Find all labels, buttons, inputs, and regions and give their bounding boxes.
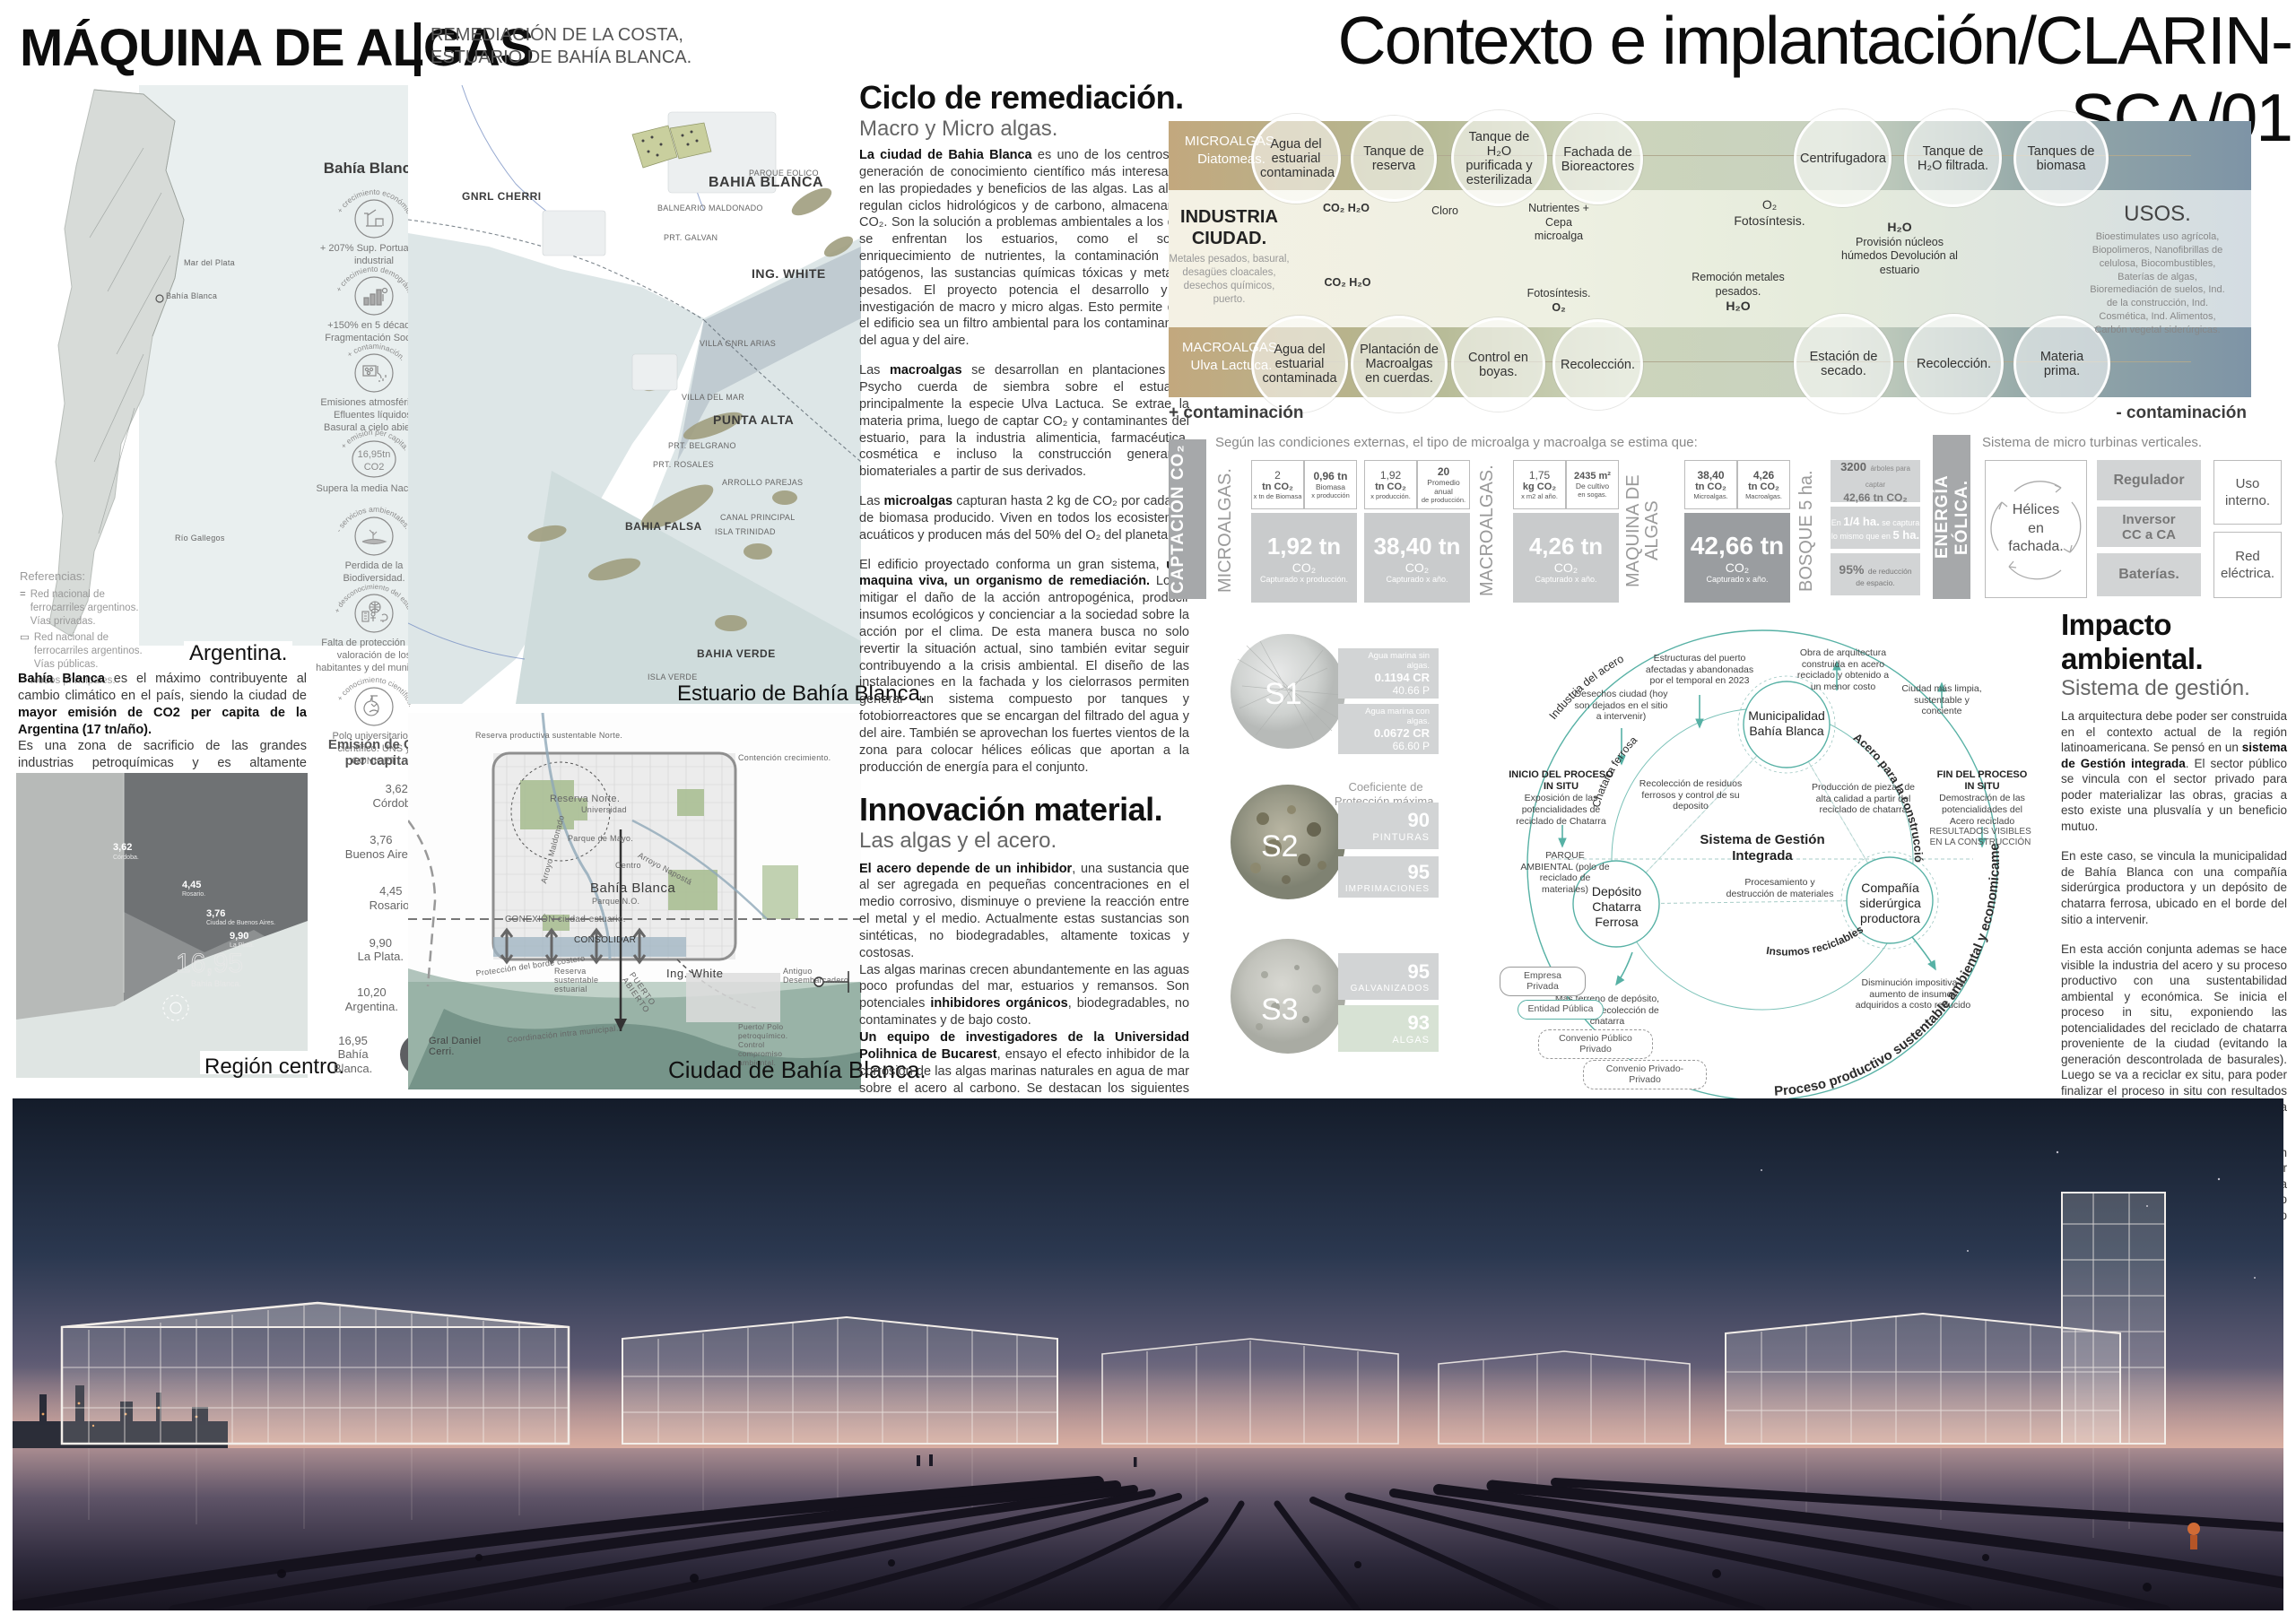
s2-box-pinturas: 90 PINTURAS [1338,803,1439,849]
innovacion-subheading: Las algas y el acero. [859,829,1189,854]
city-label: Universidad [581,805,627,814]
estuary-label: ISLA TRINIDAD [715,527,776,536]
subtitle-line2: ESTUARIO DE BAHÍA BLANCA. [430,47,691,69]
city-label: CONEXIÓN ciudad-estuario. [505,915,626,924]
sample-s3-photo: S3 [1229,937,1347,1055]
ann-recoleccion: Recolección de residuos ferrosos y contr… [1637,778,1744,812]
svg-text:+ crecimiento demográfico.: + crecimiento demográfico. [316,256,417,299]
svg-text:+ contaminación.: + contaminación. [345,342,407,362]
ann-procesamiento: Procesamiento y destrucción de materiale… [1724,877,1836,899]
flow-node: Agua del estuarial contaminada [1251,316,1348,412]
svg-text:Córdoba.: Córdoba. [113,855,139,861]
flow-node: Recolección. [1552,319,1643,410]
estuary-label: ING. WHITE [752,266,826,281]
flow-node: Agua del estuarial contaminada [1251,114,1341,204]
ann-parque: PARQUE AMBIENTAL (polo de reciclado de m… [1520,850,1610,895]
eolica-intro: Sistema de micro turbinas verticales. [1982,435,2287,450]
estuary-label: PRT. GALVAN [664,233,717,242]
map-label-rio-gallegos: Río Gallegos [175,534,225,542]
ann-inicio: INICIO DEL PROCESO IN SITUExposición de … [1505,769,1617,827]
svg-text:+ crecimiento económico.: + crecimiento económico. [335,187,417,221]
city-label: Reserva Norte. [550,794,620,804]
title-divider [414,22,421,76]
city-label: Antiguo Desembarcadero [783,967,846,985]
project-render [13,1098,2283,1610]
estuary-label: GNRL CHERRI [462,190,542,203]
city-label: Gral Daniel Cerri. [429,1036,483,1057]
captacion-section: CAPTACIÓN CO₂ Según las condiciones exte… [1169,435,1976,601]
ann-co2-h2o-bot: CO₂ H₂O [1323,276,1372,291]
svg-text:16,95: 16,95 [176,949,243,978]
ann-produccion: Producción de piezas de alta calidad a p… [1807,782,1919,816]
pill-convenio-publico: Convenio Público Privado [1538,1029,1653,1059]
bosque-vlabel: BOSQUE 5 ha. [1796,464,1823,598]
map-label-bahia-blanca-ar: Bahía Blanca [166,291,217,300]
flow-node: Tanque de H₂O purificada y esterilizada [1451,110,1547,206]
ciclo-p3: Las microalgas capturan hasta 2 kg de CO… [859,493,1189,544]
macro-vlabel: MACROALGAS. [1477,464,1504,598]
pill-entidad-publica: Entidad Pública [1518,1000,1604,1020]
svg-text:Ciudad de Buenos Aires.: Ciudad de Buenos Aires. [206,920,275,926]
industria-ciudad-label: INDUSTRIA CIUDAD. Metales pesados, basur… [1169,206,1290,307]
city-label: Reserva sustentable estuarial [554,967,608,994]
estuary-label: PRT. BELGRANO [668,441,736,450]
ann-o2-foto: O₂ Fotosíntesis. [1729,197,1810,229]
red-electrica-box: Red eléctrica. [2213,532,2282,598]
city-label: Centro [615,861,641,870]
uso-interno-box: Uso interno. [2213,460,2282,525]
ciclo-p1: La ciudad de Bahia Blanca es uno de los … [859,147,1189,350]
referencias-title: Referencias: [20,569,154,585]
impacto-subheading: Sistema de gestión. [2061,676,2287,701]
captacion-group3: 1,75kg CO₂x m2 al año. 2435 m²De cultivo… [1513,460,1619,603]
svg-text:- servicios ambientales.: - servicios ambientales. [334,505,412,534]
ann-fin: FIN DEL PROCESO IN SITUDemostración de l… [1933,769,2031,827]
rail-public-icon: ▭ [20,631,30,672]
estuary-label: ISLA VERDE [648,673,698,681]
referencias-legend: Referencias: = Red nacional de ferrocarr… [20,569,154,687]
impacto-p2: En este caso, se vincula la municipalida… [2061,848,2287,927]
s3-box-algas: 93 ALGAS [1338,1005,1439,1052]
argentina-caption: Argentina. [184,641,292,666]
impacto-p1: La arquitectura debe poder ser construid… [2061,708,2287,834]
ann-obra: Obra de arquitectura construida en acero… [1794,647,1892,692]
svg-text:4,45: 4,45 [182,880,201,890]
ann-cloro: Cloro [1418,204,1472,219]
node-municipalidad: Municipalidad Bahía Blanca [1742,708,1831,739]
estuary-label: PRT. ROSALES [653,460,714,469]
regulador-box: Regulador [2097,460,2201,500]
s3-box-galvanizados: 95 GALVANIZADOS [1338,953,1439,1000]
samples-section: S1 Agua marina sin algas. 0.1194 CR 40.6… [1229,632,1444,1085]
flow-node: Fachada de Bioreactores [1552,114,1643,204]
svg-text:9,90: 9,90 [230,931,248,942]
flow-node: Tanque de reserva [1351,116,1437,202]
gestion-center-label: Sistema de GestiónIntegrada [1682,832,1843,864]
node-compania: Compañía siderúrgica productora [1848,881,1933,925]
ann-remocion: Remoción metales pesados.H₂O [1671,271,1805,315]
bold-lead: Bahía Blanca [18,672,105,686]
pill-empresa-privada: Empresa Privada [1500,967,1586,996]
impacto-heading: Impacto ambiental. [2061,608,2287,676]
estuary-label: BALNEARIO MALDONADO [657,204,763,213]
city-label: CONSOLIDAR [574,935,636,945]
usos-block: USOS. Bioestimulates uso agrícola, Biopo… [2083,202,2231,337]
flow-node: Control en boyas. [1451,317,1545,412]
estuary-label: VILLA GNRL ARIAS [700,339,776,348]
city-label: Bahía Blanca [590,881,675,896]
ann-fotosintesis: Fotosíntesis.O₂ [1514,287,1604,315]
svg-text:3,62: 3,62 [113,842,132,853]
s1-box-sin-algas: Agua marina sin algas. 0.1194 CR 40.66 P [1338,648,1439,699]
ann-disminucion: Disminución impositiva y aumento de insu… [1855,977,1971,1011]
remediation-flow-diagram: MICROALGAS.Diatomeas. MACROALGAS.Ulva La… [1169,117,2251,426]
ciclo-p2: Las macroalgas se desarrollan en plantac… [859,362,1189,481]
usos-list: Bioestimulates uso agrícola, Biopolimero… [2083,230,2231,337]
eolica-section: Sistema de micro turbinas verticales. Hé… [1982,435,2287,605]
svg-text:La Plata.: La Plata. [230,942,255,949]
minus-contamination: - contaminación [2116,404,2247,423]
estuary-label: PARQUE EOLICO [749,169,819,178]
city-label: Contención crecimiento. [738,753,831,762]
s1-box-con-algas: Agua marina con algas. 0.0672 CR 66.60 P [1338,704,1439,754]
ann-resultados: RESULTADOS VISIBLES EN LA CONSTRUCCIÓN [1926,827,2034,848]
flow-node: Tanques de biomasa [2013,111,2109,206]
estuary-label: ARROLLO PAREJAS [722,478,803,487]
ciclo-p4: El edificio proyectado conforma un gran … [859,557,1189,777]
ciclo-heading: Ciclo de remediación. [859,79,1189,117]
project-subtitle: REMEDIACIÓN DE LA COSTA, ESTUARIO DE BAH… [430,24,691,69]
ann-provision: H₂O Provisión núcleos húmedos Devolución… [1837,220,1962,277]
gestion-diagram: Proceso productivo sustentable ambiental… [1489,619,2045,1103]
bosque-boxes: 3200 árboles para captar 42,66 tn CO₂ En… [1831,460,1920,595]
usos-title: USOS. [2083,202,2231,227]
helices-box: Hélices en fachada. [1985,460,2087,598]
estuary-label: BAHIA VERDE [697,647,776,660]
svg-text:S1: S1 [1265,677,1302,711]
svg-text:S3: S3 [1261,993,1299,1027]
captacion-intro: Según las condiciones externas, el tipo … [1215,435,1753,450]
captacion-group2: 1,92tn CO₂x producción. 20Promedio anual… [1364,460,1470,603]
estuary-label: CANAL PRINCIPAL [720,513,796,522]
micro-vlabel: MICROALGAS. [1215,464,1242,598]
flow-node: Plantación de Macroalgas en cuerdas. [1351,316,1448,412]
city-label: Ing. White [666,967,724,980]
city-label: Parque N.O. [592,897,639,906]
svg-text:16,95tn: 16,95tn [358,449,391,460]
subtitle-line1: REMEDIACIÓN DE LA COSTA, [430,24,691,47]
sample-s2-photo: S2 [1229,783,1347,901]
svg-text:S2: S2 [1261,829,1299,864]
city-label: Parque de Mayo. [568,834,633,843]
flow-node: Centrifugadora [1794,109,1892,207]
innovacion-p1: El acero depende de un inhibidor, una su… [859,861,1189,962]
baterias-box: Baterías. [2097,553,2201,596]
estuary-label: PUNTA ALTA [713,412,794,427]
innovacion-p2: Las algas marinas crecen abundantemente … [859,962,1189,1029]
svg-text:Rosario.: Rosario. [182,891,205,898]
referencias-item1: Red nacional de ferrocarriles argentinos… [30,588,154,629]
flow-node: Tanque de H₂O filtrada. [1904,109,2002,207]
city-label: Reserva productiva sustentable Norte. [475,731,622,740]
sample-s1-photo: S1 [1229,632,1347,751]
presentation-board: MÁQUINA DE ALGAS REMEDIACIÓN DE LA COSTA… [0,0,2296,1623]
captacion-group1: 2tn CO₂x tn de Biomasa 0,96 tnBiomasax p… [1251,460,1357,603]
innovacion-heading: Innovación material. [859,791,1189,829]
flow-node: Recolección. [1904,314,2004,413]
estuary-label: VILLA DEL MAR [682,393,744,402]
inversor-box: Inversor CC a CA [2097,507,2201,547]
rail-private-icon: = [20,588,26,629]
estuary-label: BAHIA FALSA [625,520,702,533]
captacion-group4: 38,40tn CO₂Microalgas. 4,26tn CO₂Macroal… [1684,460,1790,603]
s2-box-imprimaciones: 95 IMPRIMACIONES [1338,856,1439,898]
svg-text:CO2: CO2 [364,462,385,473]
ann-co2-h2o-top: CO₂ H₂O [1319,202,1373,216]
flow-node: Estación de secado. [1794,314,1893,413]
ann-ciudad-limpia: Ciudad más limpia, sustentable y concien… [1897,683,1987,717]
svg-text:3,76: 3,76 [206,908,225,919]
ciclo-subheading: Macro y Micro algas. [859,117,1189,142]
svg-text:+ desconocimiento del estuario: + desconocimiento del estuario. [316,574,416,617]
svg-text:Bahía Blanca.: Bahía Blanca. [191,979,241,988]
ann-estructuras: Estructuras del puerto afectadas y aband… [1641,653,1758,687]
maquina-vlabel: MAQUINA DE ALGAS [1624,464,1674,598]
eolica-bar: ENERGÍA EÓLICA. [1933,435,1970,599]
referencias-item2: Red nacional de ferrocarriles argentinos… [34,631,154,672]
region-centro-map: 3,62 4,45 3,76 9,90 Córdoba. Rosario. Ci… [16,773,308,1078]
svg-text:Insumos reciclables: Insumos reciclables [1766,923,1866,958]
ann-nutrientes: Nutrientes + Cepa microalga [1523,202,1595,244]
map-label-mar-del-plata: Mar del Plata [184,258,235,267]
captacion-bar: CAPTACIÓN CO₂ [1169,439,1206,599]
pill-convenio-privado: Convenio Privado-Privado [1583,1060,1707,1089]
ann-desechos: Desechos ciudad (hoy son dejados en el s… [1574,689,1668,723]
plus-contamination: + contaminación [1169,404,1303,423]
